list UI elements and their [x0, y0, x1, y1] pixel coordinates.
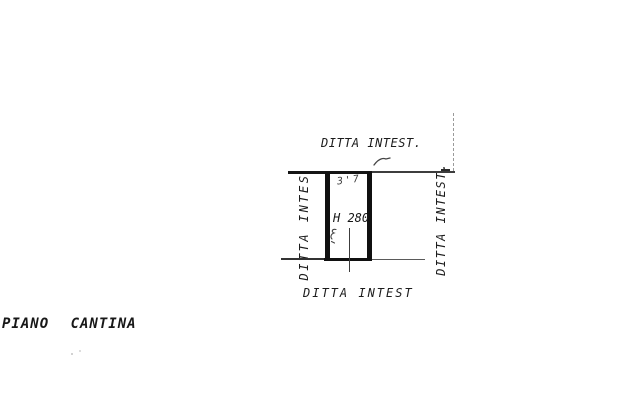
boundary-line-top-thin [372, 171, 455, 173]
owner-label-left: DITTA INTES [298, 174, 310, 281]
boundary-line-bottom-left [281, 258, 324, 260]
scan-speckle [79, 350, 81, 352]
dimension-line-vertical [349, 228, 350, 272]
floor-title: PIANO CANTINA [2, 317, 137, 331]
owner-label-right: DITTA INTEST. [435, 162, 447, 275]
pencil-squiggle-mark [329, 228, 341, 245]
pencil-check-mark [373, 156, 392, 167]
dashed-guide-line-vertical [453, 113, 454, 171]
scanned-plan-canvas: DITTA INTEST. DITTA INTES DITTA INTEST. … [0, 0, 641, 412]
room-height-label: H 280 [333, 212, 369, 224]
room-wall-bottom [324, 258, 372, 261]
boundary-line-bottom-right [372, 259, 425, 260]
room-wall-left [325, 172, 330, 261]
owner-label-bottom: DITTA INTEST [303, 287, 414, 299]
guide-line-end-tick [441, 169, 450, 171]
scan-speckle [71, 353, 73, 355]
owner-label-top: DITTA INTEST. [321, 137, 421, 149]
pencil-dimension-note: 3'7 [336, 175, 361, 188]
